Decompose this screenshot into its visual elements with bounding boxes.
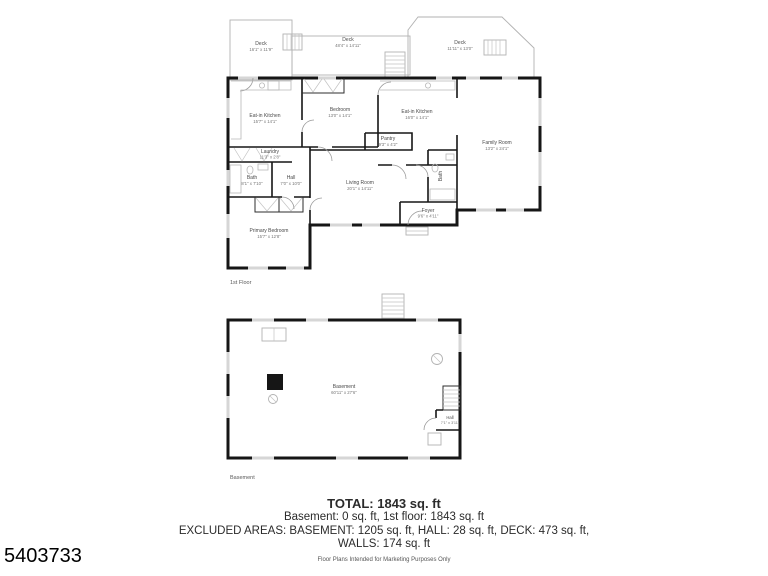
stairs-deck-right [484,40,506,55]
first-floor-windows [228,78,540,268]
stairs-deck-center [385,52,405,78]
room-label: Bath [438,171,444,182]
listing-id: 5403733 [4,545,82,568]
utility-symbol-right [432,354,443,365]
excluded-areas-text-2: WALLS: 174 sq. ft [0,538,768,552]
room-dims: 13'2" x 24'1" [485,146,509,151]
excluded-areas-text: EXCLUDED AREAS: BASEMENT: 1205 sq. ft, H… [0,525,768,539]
basement-hall-door-arc [424,418,436,430]
room-dims: 11'3" x 2'8" [260,155,281,160]
room-dims: 60'11" x 27'6" [331,390,357,395]
total-area-text: TOTAL: 1843 sq. ft [0,497,768,511]
room-dims: 9'6" x 4'11" [418,214,439,219]
kitchen-left-counters [231,81,291,139]
chimney-block [267,374,283,390]
basement-caption: Basement [230,475,255,481]
room-dims: 7'1" x 3'11" [441,421,460,425]
room-label: Hall [446,415,453,420]
basement-equipment-box [428,433,441,445]
room-dims: 16'1" x 11'9" [249,47,273,52]
first-floor-outer-walls [228,78,540,268]
room-dims: 48'4" x 14'11" [335,43,361,48]
basement-window-well [262,328,286,341]
basement-plan: Basement 60'11" x 27'6" Hall 7'1" x 3'11… [228,294,460,481]
basement-stairs [443,386,460,410]
room-dims: 15'7" x 12'8" [257,234,281,239]
room-dims: 13'0" x 14'1" [328,113,352,118]
room-dims: 16'0" x 14'1" [405,115,429,120]
room-dims: 15'7" x 14'1" [253,119,277,124]
kitchen-right-counters [380,81,455,90]
room-dims: 9'3" x 4'2" [379,142,398,147]
floor-plan-image: Deck 16'1" x 11'9" Deck 48'4" x 14'11" D… [0,0,768,576]
floor-areas-text: Basement: 0 sq. ft, 1st floor: 1843 sq. … [0,511,768,525]
room-dims: 20'1" x 14'11" [347,186,373,191]
first-floor-caption: 1st Floor [230,280,252,286]
primary-bedroom-closets [255,197,303,212]
room-dims: 11'11" x 13'0" [447,46,473,51]
marketing-disclaimer: Floor Plans Intended for Marketing Purpo… [0,557,768,564]
room-dims: 7'0" x 10'0" [280,181,302,186]
front-porch-steps [406,227,428,235]
first-floor-plan: Deck 16'1" x 11'9" Deck 48'4" x 14'11" D… [228,17,540,286]
room-dims: 8'1" x 7'10" [241,181,263,186]
basement-bulkhead-stairs [382,294,404,320]
area-summary: TOTAL: 1843 sq. ft Basement: 0 sq. ft, 1… [0,497,768,564]
utility-symbol-left [269,395,278,404]
bedroom-closet [302,78,344,93]
basement-hall-walls [436,410,460,430]
